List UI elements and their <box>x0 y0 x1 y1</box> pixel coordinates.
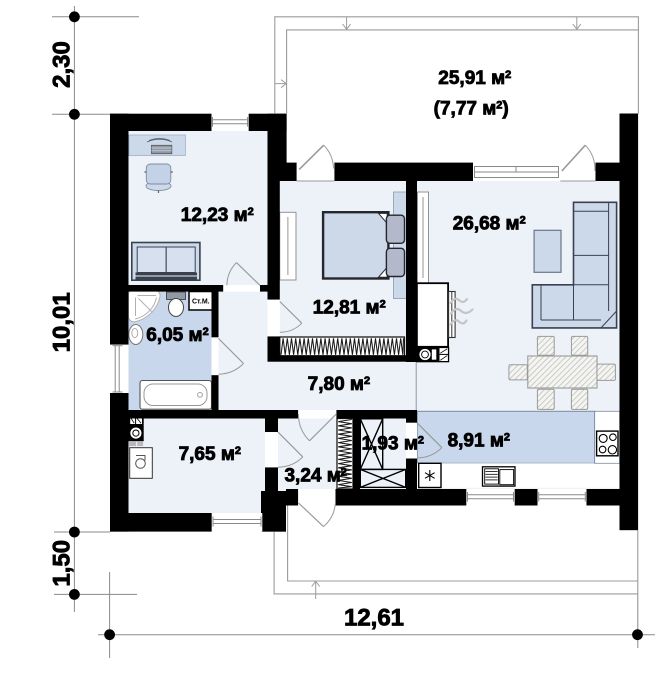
svg-text:12,81 м2: 12,81 м2 <box>313 298 386 319</box>
svg-text:12,23 м2: 12,23 м2 <box>181 205 254 226</box>
svg-text:3,24 м2: 3,24 м2 <box>284 466 346 487</box>
svg-text:26,68 м2: 26,68 м2 <box>453 214 526 235</box>
svg-text:Ст.М.: Ст.М. <box>192 299 210 306</box>
svg-text:8,91 м2: 8,91 м2 <box>448 431 510 452</box>
svg-text:12,61: 12,61 <box>344 605 404 632</box>
svg-text:1,50: 1,50 <box>49 540 76 587</box>
svg-text:7,80 м2: 7,80 м2 <box>308 374 370 395</box>
svg-text:10,01: 10,01 <box>49 292 76 352</box>
svg-text:1,93 м2: 1,93 м2 <box>362 434 424 455</box>
svg-text:6,05 м2: 6,05 м2 <box>146 325 208 346</box>
svg-text:2,30: 2,30 <box>49 41 76 88</box>
svg-text:7,65 м2: 7,65 м2 <box>179 444 241 465</box>
svg-text:25,91 м2: 25,91 м2 <box>438 68 511 89</box>
